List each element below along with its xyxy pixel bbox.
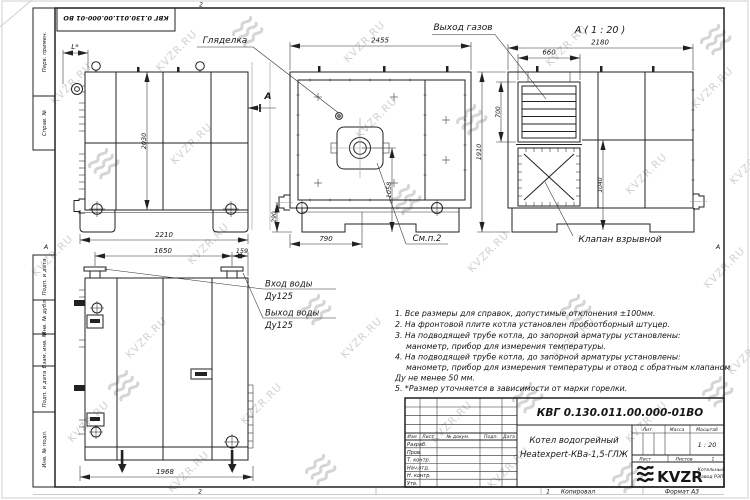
tb-row-nkontr: Н. контр. bbox=[407, 473, 431, 479]
drawing-sheet: KVZR.RUKVZR.RUKVZR.RUKVZR.RUKVZR.RUKVZR.… bbox=[0, 0, 750, 500]
label-water-inlet-dn: Ду125 bbox=[264, 292, 293, 302]
label-water-inlet: Вход воды bbox=[265, 280, 313, 290]
tb-mass-label: Масса bbox=[670, 427, 685, 433]
dim-2180: 2180 bbox=[591, 39, 609, 47]
copied-label: Копировал bbox=[561, 489, 595, 496]
label-see-note2: См.п.2 bbox=[413, 234, 442, 244]
tb-col-izm: Изм bbox=[407, 434, 417, 440]
zone-letter-right: А bbox=[715, 243, 720, 251]
tb-company-line1: Котельный bbox=[698, 467, 725, 473]
dim-1968: 1968 bbox=[156, 468, 174, 476]
note-line: 4. На подводящей трубе котла, до запорно… bbox=[395, 353, 681, 362]
note-line: 5. *Размер уточняется в зависимости от м… bbox=[395, 384, 627, 393]
tb-sheets-value: 1 bbox=[712, 456, 715, 462]
label-explosion-valve: Клапан взрывной bbox=[578, 235, 661, 245]
stamp-sprav-no: Справ. № bbox=[42, 109, 48, 136]
dim-1040: 1040 bbox=[597, 177, 604, 192]
dim-290: 290 bbox=[271, 211, 278, 223]
view-section: А ( 1 : 20 ) Выход газов bbox=[432, 23, 707, 245]
view-side: L* 2030 2210 А bbox=[63, 43, 276, 244]
dim-1650: 1650 bbox=[154, 247, 172, 255]
drawing-canvas: Перв. примен. Справ. № Подп. и дата Инв.… bbox=[0, 0, 750, 500]
dim-L: L* bbox=[71, 43, 79, 51]
note-line: 3. На подводящей трубе котла, до запорно… bbox=[395, 331, 681, 340]
view-rear: 1650 159 1968 Вход воды Ду125 Выход воды… bbox=[74, 247, 336, 481]
tb-sheets-label: Листов bbox=[674, 456, 692, 462]
drawing-frame: Перв. примен. Справ. № Подп. и дата Инв.… bbox=[33, 2, 724, 496]
tb-scale-value: 1 : 20 bbox=[698, 441, 717, 449]
label-water-outlet: Выход воды bbox=[265, 309, 319, 319]
tb-col-list: Лист bbox=[421, 434, 434, 440]
dim-1910: 1910 bbox=[475, 144, 483, 161]
zone-bottom: 2 bbox=[198, 489, 202, 496]
note-line: 2. На фронтовой плите котла установлен п… bbox=[395, 320, 670, 329]
tb-lit-label: Лит. bbox=[642, 427, 654, 433]
tb-row-utv: Утв. bbox=[407, 481, 418, 487]
tb-row-razrab: Разраб. bbox=[407, 442, 427, 448]
kvzr-logo-text: KVZR bbox=[657, 468, 703, 486]
tb-scale-label: Масштаб bbox=[696, 427, 718, 433]
paper-edge bbox=[0, 0, 748, 498]
label-sight-hole: Гляделка bbox=[203, 36, 248, 46]
stamp-perv-primen: Перв. примен. bbox=[42, 32, 48, 72]
tb-product-line1: Котел водогрейный bbox=[529, 436, 619, 446]
tb-company-line2: завод РЭП bbox=[699, 474, 724, 480]
tb-row-nachotd: Нач.отд. bbox=[407, 465, 429, 471]
stamp-podp-data-1: Подп. и дата bbox=[42, 259, 48, 296]
notes-block: 1. Все размеры для справок, допустимые о… bbox=[394, 309, 730, 393]
title-block: Изм Лист № докум. Подп. Дата Разраб. Про… bbox=[405, 398, 724, 487]
zone-top: 2 bbox=[199, 2, 203, 9]
sheet-no-bottom: 1 bbox=[546, 489, 550, 496]
dim-2455: 2455 bbox=[371, 37, 389, 45]
dim-660: 660 bbox=[542, 49, 556, 57]
zone-letter-left: А bbox=[43, 243, 48, 251]
flipped-designation-text: КВГ 0.130.011.00.000-01 ВО bbox=[63, 14, 169, 22]
tb-row-prov: Пров. bbox=[407, 450, 422, 456]
dim-159: 159 bbox=[236, 247, 248, 255]
tb-sheet-label: Лист bbox=[638, 456, 651, 462]
format-label: Формат А3 bbox=[665, 489, 699, 496]
note-line: 1. Все размеры для справок, допустимые о… bbox=[395, 309, 655, 318]
section-view-title: А ( 1 : 20 ) bbox=[574, 25, 625, 36]
kvzr-logo-icon bbox=[638, 467, 653, 481]
note-line: манометр, прибор для измерения температу… bbox=[406, 363, 730, 372]
dim-790: 790 bbox=[319, 235, 333, 243]
label-water-outlet-dn: Ду125 bbox=[264, 321, 293, 331]
tb-row-tkontr: Т. контр. bbox=[407, 458, 430, 464]
tb-col-sign: Подп. bbox=[484, 434, 498, 440]
note-line: манометр, прибор для измерения температу… bbox=[406, 342, 606, 351]
view-front: 2455 1058 290 790 Гляделка См.п.2 bbox=[197, 36, 471, 248]
dim-2210: 2210 bbox=[155, 231, 173, 239]
stamp-inv-podl: Инв. № подл. bbox=[42, 430, 48, 467]
stamp-podp-data-2: Подп. и дата bbox=[42, 371, 48, 408]
tb-col-doc: № докум. bbox=[446, 434, 470, 440]
stamp-inv-dubl: Инв. № дубл. bbox=[42, 299, 48, 336]
stamp-vzam-inv: Взам. инв. № bbox=[42, 331, 48, 368]
dim-2030: 2030 bbox=[140, 133, 148, 150]
tb-designation: КВГ 0.130.011.00.000-01ВО bbox=[537, 407, 704, 419]
dim-700: 700 bbox=[495, 106, 502, 118]
label-gas-outlet: Выход газов bbox=[433, 23, 492, 33]
section-letter: А bbox=[264, 92, 272, 102]
tb-col-date: Дата bbox=[502, 434, 515, 440]
tb-product-line2: Heatexpert-КВа-1,5-ГЛЖ bbox=[520, 450, 629, 460]
note-line: Ду не менее 50 мм. bbox=[394, 374, 475, 383]
